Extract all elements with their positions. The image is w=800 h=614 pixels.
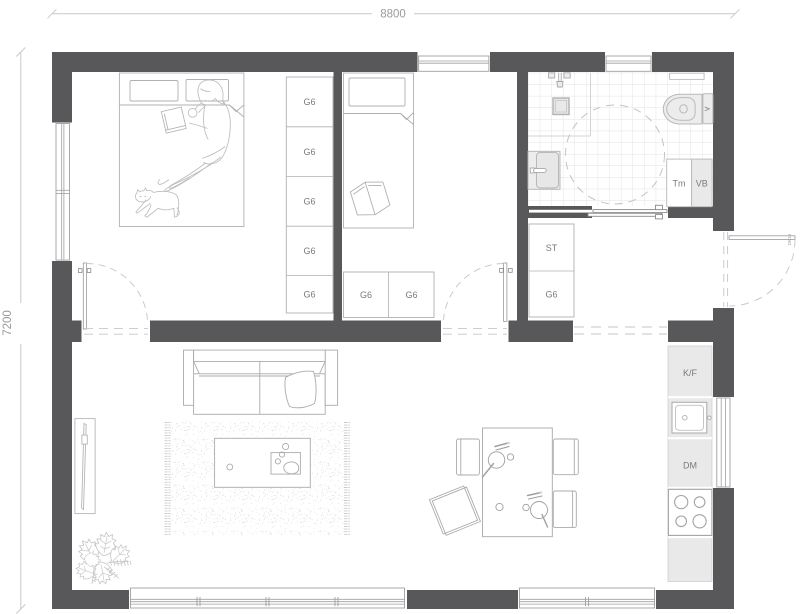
svg-text:DM: DM	[683, 461, 697, 471]
svg-text:7200: 7200	[2, 310, 14, 336]
svg-text:Tm: Tm	[673, 179, 686, 189]
svg-text:G6: G6	[545, 290, 557, 300]
svg-text:VB: VB	[696, 179, 708, 189]
svg-text:ST: ST	[546, 243, 558, 253]
svg-text:G6: G6	[303, 147, 315, 157]
svg-text:G6: G6	[405, 290, 417, 300]
svg-text:G6: G6	[303, 97, 315, 107]
svg-text:G6: G6	[303, 246, 315, 256]
svg-text:G6: G6	[360, 290, 372, 300]
svg-text:G6: G6	[303, 290, 315, 300]
svg-text:G6: G6	[303, 197, 315, 207]
svg-text:K/F: K/F	[683, 368, 698, 378]
svg-text:8800: 8800	[380, 9, 406, 21]
svg-text:DK10: DK10	[787, 234, 792, 246]
